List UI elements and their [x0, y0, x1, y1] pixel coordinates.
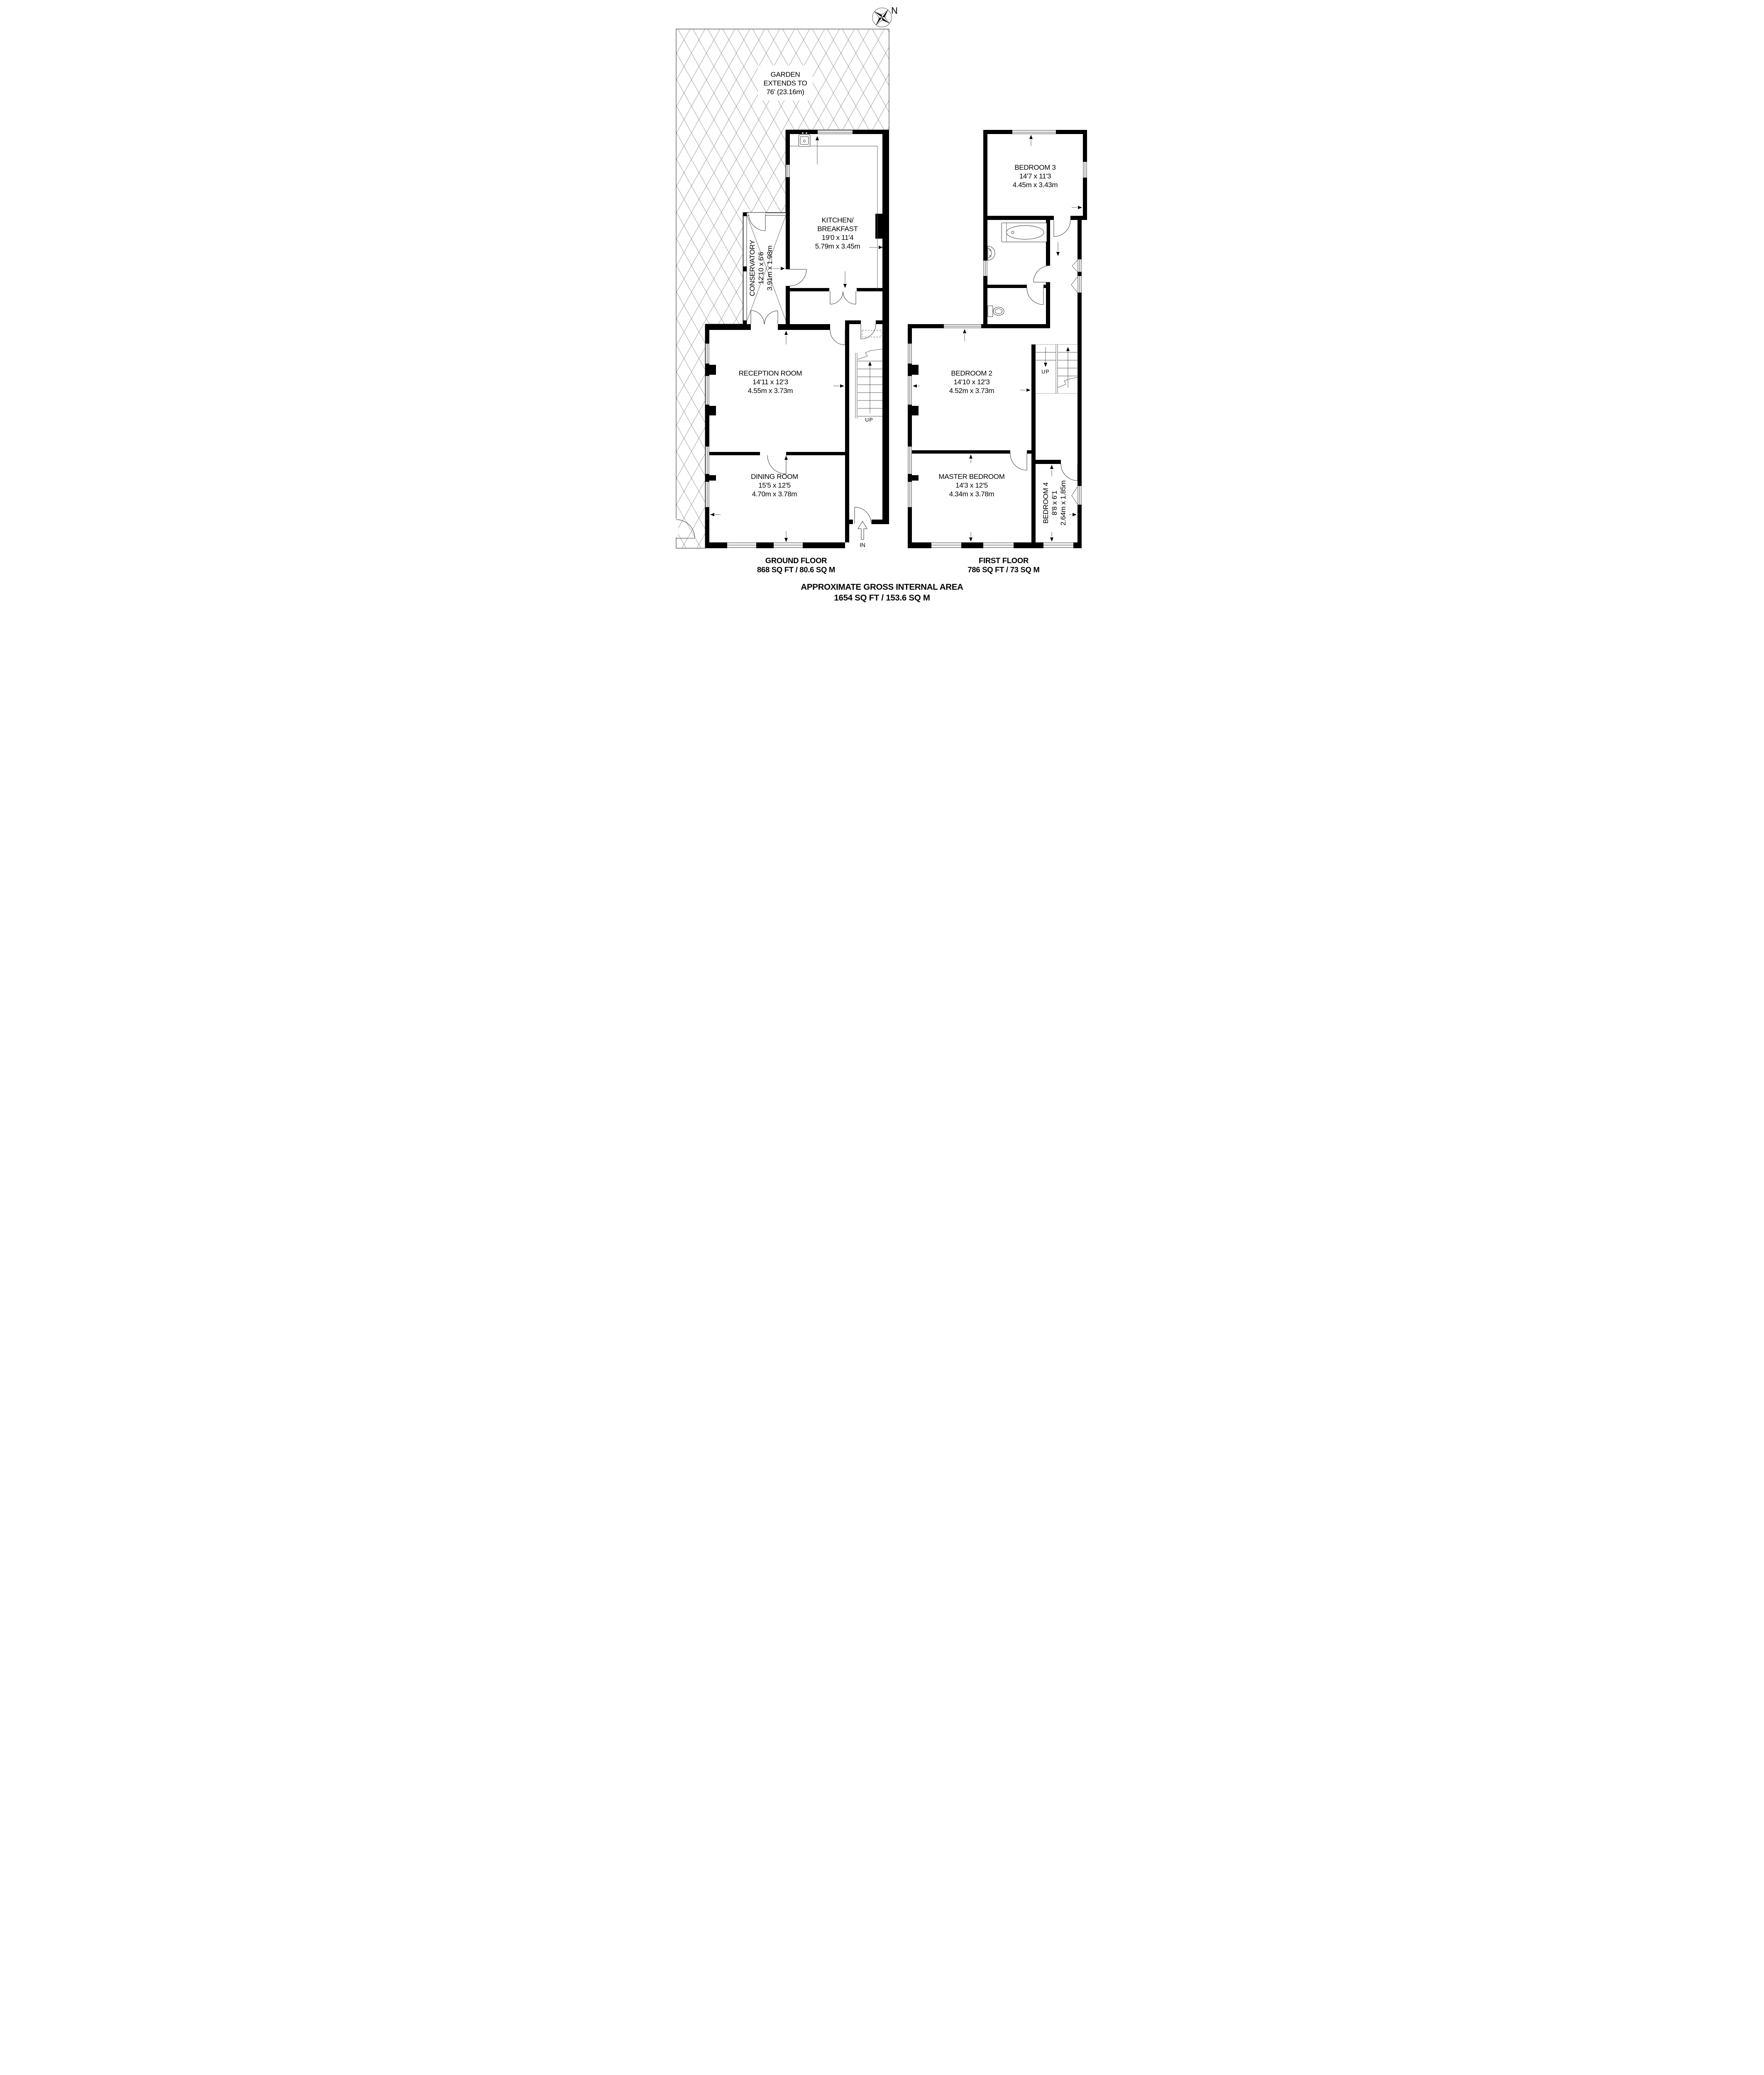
bath-tap-icon	[1011, 231, 1014, 234]
chimney-breast	[912, 406, 919, 415]
wall	[908, 542, 931, 548]
wall	[857, 288, 882, 291]
ground-stairs: UP	[855, 330, 882, 423]
drain-icon	[803, 140, 805, 142]
window	[1078, 259, 1081, 272]
window	[706, 482, 709, 507]
dining-label-name: DINING ROOM	[751, 473, 798, 481]
toilet-cistern	[988, 306, 993, 317]
casement-symbol	[1072, 487, 1077, 504]
chimney-breast	[875, 214, 882, 239]
door-reception	[830, 330, 845, 345]
summary-line1: APPROXIMATE GROSS INTERNAL AREA	[801, 582, 963, 592]
conservatory-label-imperial: 12'10 x 6'6	[757, 252, 765, 284]
garden-label-3: 76' (23.16m)	[766, 88, 804, 96]
wall	[1070, 216, 1087, 220]
wall	[908, 364, 912, 376]
wall	[983, 130, 1012, 134]
dim-arrow	[1050, 465, 1053, 469]
compass: N	[872, 5, 898, 27]
wall	[1027, 450, 1031, 454]
wall	[983, 130, 987, 220]
door-bedroom3	[1054, 220, 1070, 237]
wall	[786, 288, 829, 291]
wall	[756, 542, 774, 548]
post	[743, 266, 747, 271]
wall	[983, 216, 1054, 220]
toilet-bowl	[995, 309, 1002, 314]
stair-break-line	[1058, 377, 1077, 388]
dim-arrow	[1029, 135, 1033, 139]
basin-tap-icon	[990, 250, 991, 251]
stair-treads	[1058, 352, 1077, 376]
porch-wall	[845, 520, 853, 524]
void-dashed-box	[862, 330, 881, 337]
wall	[908, 324, 944, 328]
post	[743, 320, 747, 324]
door-conservatory-kitchen	[790, 269, 806, 286]
dining-label-imperial: 15'5 x 12'5	[758, 481, 791, 489]
french-doors-reception	[751, 310, 778, 324]
dim-arrow	[969, 537, 972, 542]
dim-arrow	[1078, 206, 1082, 209]
conservatory-label-metric: 3.91m x 1.98m	[766, 246, 774, 291]
garden-label-2: EXTENDS TO	[763, 79, 807, 87]
reception-label-imperial: 14'11 x 12'3	[753, 378, 788, 386]
window	[908, 482, 911, 507]
wall	[786, 212, 790, 269]
window	[786, 165, 789, 177]
wall	[1073, 542, 1082, 548]
wall	[983, 285, 1027, 288]
wall	[778, 324, 830, 330]
tap-icon	[806, 132, 807, 134]
garden-label-1: GARDEN	[770, 71, 800, 78]
wall	[705, 324, 709, 344]
chimney-breast	[709, 406, 716, 415]
window	[908, 344, 911, 364]
door-bedroom2	[1010, 454, 1027, 470]
stair-arrow-head	[868, 361, 872, 366]
wall	[961, 542, 983, 548]
kitchen-label-name2: BREAKFAST	[817, 225, 858, 233]
garden-gate-gap	[674, 519, 678, 537]
bathroom-fixtures	[988, 223, 1047, 317]
summary-line2: 1654 SQ FT / 153.6 SQ M	[834, 593, 930, 603]
wall	[1077, 272, 1082, 276]
dim-arrow	[840, 384, 844, 388]
chimney-breast	[912, 475, 919, 481]
bedroom3-label-imperial: 14'7 x 11'3	[1019, 172, 1051, 180]
floorplan-page: GARDEN EXTENDS TO 76' (23.16m) N	[662, 0, 1103, 607]
kitchen-label-name1: KITCHEN/	[821, 216, 854, 224]
dim-arrow	[816, 136, 819, 140]
first-stairs: UP	[1036, 344, 1077, 393]
bedroom4-label-metric: 2.64m x 1.85m	[1059, 481, 1067, 526]
entry-arrow-icon	[858, 521, 867, 539]
wall	[1083, 178, 1087, 220]
entrance: IN	[858, 521, 867, 548]
stair-divider	[1056, 344, 1058, 393]
chimney-breast	[709, 475, 716, 481]
stair-break-line	[858, 349, 882, 359]
basin-tap-icon	[990, 256, 991, 257]
stair-arrow-head	[1066, 347, 1070, 351]
wall	[1077, 505, 1082, 548]
dim-arrow	[784, 538, 788, 542]
window	[706, 447, 709, 474]
window	[1078, 276, 1081, 293]
captions: GROUND FLOOR 868 SQ FT / 80.6 SQ M FIRST…	[757, 556, 1039, 603]
wall	[803, 542, 845, 548]
wall	[705, 405, 709, 447]
wall	[705, 474, 709, 482]
compass-star-outline	[874, 10, 889, 25]
entry-in-label: IN	[860, 542, 865, 548]
wall	[705, 324, 751, 330]
wall	[912, 450, 1010, 454]
wall	[1077, 293, 1082, 486]
chimney-breast	[709, 365, 716, 375]
window	[983, 543, 1014, 548]
door-bedroom4	[1061, 464, 1077, 481]
dim-arrow	[963, 329, 966, 333]
wall	[845, 320, 861, 324]
dining-label-metric: 4.70m x 3.78m	[752, 490, 797, 498]
master-label-imperial: 14'3 x 12'5	[955, 481, 988, 489]
wall	[786, 286, 790, 324]
window	[706, 376, 709, 405]
bedroom4-label-imperial: 8'8 x 6'1	[1051, 491, 1058, 515]
wall	[908, 507, 912, 548]
master-label-metric: 4.34m x 3.78m	[949, 490, 994, 498]
dim-arrow	[913, 384, 917, 388]
door-conservatory-garden	[749, 214, 765, 231]
window	[1083, 162, 1087, 178]
first-floor-area: 786 SQ FT / 73 SQ M	[968, 565, 1039, 574]
wall	[705, 364, 709, 376]
wall	[786, 130, 818, 134]
door-bathroom	[1033, 266, 1050, 282]
wall	[983, 276, 987, 328]
compass-north-label: N	[891, 5, 898, 16]
party-wall	[882, 130, 889, 524]
post	[743, 212, 747, 216]
bedroom4-label-name: BEDROOM 4	[1042, 482, 1050, 523]
wall	[908, 324, 912, 344]
window	[908, 447, 911, 474]
conservatory-label: CONSERVATORY 12'10 x 6'6 3.91m x 1.98m	[748, 240, 774, 296]
door-dining	[767, 455, 786, 474]
first-floor-title: FIRST FLOOR	[978, 556, 1028, 565]
bedroom3-label-metric: 4.45m x 3.43m	[1012, 181, 1058, 189]
dim-arrow	[843, 284, 847, 288]
wall	[1077, 220, 1082, 259]
window	[984, 261, 987, 276]
kitchen-label-imperial: 19'0 x 11'4	[821, 234, 853, 242]
glazing	[743, 213, 786, 215]
window	[706, 344, 709, 364]
wall	[1036, 460, 1061, 464]
conservatory-label-name: CONSERVATORY	[748, 240, 756, 296]
wall	[1043, 285, 1046, 288]
window	[727, 543, 756, 548]
ground-floor-area: 868 SQ FT / 80.6 SQ M	[757, 565, 835, 574]
dim-arrow	[781, 267, 785, 270]
wall	[983, 220, 987, 261]
stairwell-wall	[1031, 344, 1036, 548]
window	[774, 543, 803, 548]
stair-arrow-head	[1044, 363, 1047, 367]
wall	[981, 324, 1050, 328]
dim-arrow	[879, 246, 883, 249]
bedroom2-label-name: BEDROOM 2	[951, 369, 992, 377]
dim-arrow	[1026, 388, 1031, 392]
casement-symbol	[1072, 260, 1077, 272]
tap-icon	[802, 132, 804, 134]
window	[818, 130, 853, 134]
front-door	[855, 507, 871, 524]
dim-arrow	[1056, 252, 1060, 256]
dim-arrow	[710, 513, 714, 516]
kitchen-fixtures	[790, 132, 877, 290]
wall	[709, 452, 760, 455]
dim-arrow	[784, 456, 788, 460]
wall	[1014, 542, 1043, 548]
wall	[786, 452, 845, 455]
floorplan-drawing: GARDEN EXTENDS TO 76' (23.16m) N	[662, 0, 1103, 607]
wall	[786, 130, 790, 165]
dim-arrow	[969, 454, 972, 459]
wall	[786, 177, 790, 212]
wall	[705, 507, 709, 548]
bedroom2-label-metric: 4.52m x 3.73m	[949, 387, 994, 395]
chimney-breast	[912, 365, 919, 375]
wall	[908, 474, 912, 482]
wall	[876, 320, 882, 324]
reception-label-metric: 4.55m x 3.73m	[748, 387, 793, 395]
hall-wall	[845, 324, 849, 542]
window	[908, 376, 911, 405]
dim-arrow	[784, 331, 788, 335]
first-up-label: UP	[1041, 369, 1049, 375]
window	[1078, 486, 1081, 505]
stair-treads	[1036, 352, 1056, 360]
window	[1043, 543, 1073, 548]
window	[944, 325, 981, 328]
dim-arrow	[1050, 537, 1053, 542]
reception-label-name: RECEPTION ROOM	[738, 369, 802, 377]
wall	[705, 542, 727, 548]
wall	[1046, 282, 1050, 328]
kitchen-label-metric: 5.79m x 3.45m	[815, 242, 860, 250]
bedroom2-label-imperial: 14'10 x 12'3	[953, 378, 990, 386]
wall	[1083, 130, 1087, 162]
window	[1012, 130, 1056, 134]
casement-symbol	[1071, 277, 1077, 293]
master-label-name: MASTER BEDROOM	[938, 473, 1004, 481]
bedroom4-label: BEDROOM 4 8'8 x 6'1 2.64m x 1.85m	[1042, 481, 1067, 526]
door-wc	[1027, 288, 1043, 305]
ground-up-label: UP	[865, 417, 873, 423]
stair-stringer	[855, 353, 857, 418]
ground-floor-title: GROUND FLOOR	[765, 556, 827, 565]
porch-wall	[872, 520, 889, 524]
bedroom3-label-name: BEDROOM 3	[1014, 164, 1055, 171]
wall	[908, 405, 912, 447]
dim-arrow	[1073, 513, 1077, 516]
wall	[1056, 130, 1087, 134]
window	[931, 543, 961, 548]
double-door-lobby	[830, 291, 856, 304]
